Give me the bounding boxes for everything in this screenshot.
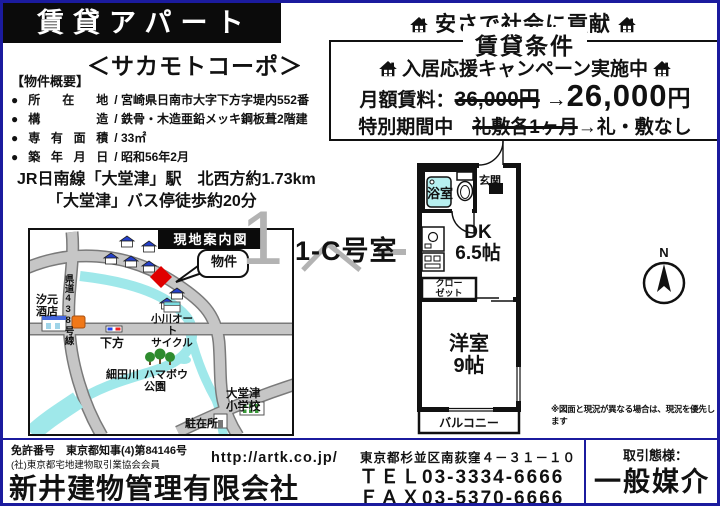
rent-line: 月額賃料：36,000円 →26,000円 <box>331 78 719 114</box>
rent-arrow: → <box>546 88 567 111</box>
separator: / <box>114 93 117 107</box>
company-name: 新井建物管理有限会社 <box>9 467 299 506</box>
footer-divider <box>3 438 720 440</box>
overview-value: 昭和56年2月 <box>121 150 189 164</box>
flyer-page: 賃貸アパート 安さで社会に貢献 賃貸条件 入居応援キャンペーン実施中 月額賃料：… <box>0 0 720 506</box>
property-name: ＜サカモトコーポ＞ <box>87 47 303 81</box>
overview-row: ●構造/ 鉄骨・木造亜鉛メッキ鋼板葺2階建 <box>11 110 309 129</box>
room-number: 1-C号室 <box>295 229 398 268</box>
website-url: http://artk.co.jp/ <box>211 450 338 466</box>
map-label-school: 大堂津 小学校 <box>226 388 261 414</box>
overview-value: 33㎡ <box>121 131 146 145</box>
bath-label: 浴室 <box>427 183 453 202</box>
special-arrow: → <box>578 117 597 138</box>
house-icon <box>379 61 397 77</box>
map-label-river: 細田川 <box>106 369 139 381</box>
balcony-label: バルコニー <box>425 414 513 431</box>
special-new: 礼・敷なし <box>597 117 692 138</box>
rent-old-price: 36,000円 <box>455 88 540 111</box>
map-label-route438: 県道438号線 <box>62 274 73 350</box>
special-line: 特別期間中 礼敷各1ヶ月→礼・敷なし <box>331 112 719 139</box>
rent-new-unit: 円 <box>667 85 690 111</box>
compass-icon <box>641 260 687 306</box>
campaign-line: 入居応援キャンペーン実施中 <box>331 54 719 81</box>
rent-label: 月額賃料： <box>360 90 455 111</box>
page-title: 賃貸アパート <box>3 3 281 43</box>
compass: N <box>641 245 687 311</box>
overview-heading: 【物件概要】 <box>11 71 89 90</box>
map-label-liquor-shop: 汐元 酒店 <box>36 294 58 319</box>
overview-list: ●所在地/ 宮崎県日南市大字下方字堤内552番 ●構造/ 鉄骨・木造亜鉛メッキ鋼… <box>11 91 309 167</box>
bullet-icon: ● <box>11 93 18 107</box>
overview-value: 鉄骨・木造亜鉛メッキ鋼板葺2階建 <box>121 112 308 126</box>
callout-label: 物件 <box>202 255 246 270</box>
overview-label: 所在地 <box>28 91 108 110</box>
bullet-icon: ● <box>11 150 18 164</box>
overview-row: ●専有面積/ 33㎡ <box>11 129 309 148</box>
map-label-park: ハマボウ 公園 <box>144 369 188 394</box>
river-wide <box>32 400 78 434</box>
special-old: 礼敷各1ヶ月 <box>472 117 578 138</box>
campaign-text: 入居応援キャンペーン実施中 <box>402 59 648 80</box>
traffic-signal-icon <box>106 326 122 332</box>
bedroom-label: 洋室 9帖 <box>439 333 499 377</box>
overview-label: 専有面積 <box>28 129 108 148</box>
special-prefix: 特別期間中 <box>358 117 472 138</box>
overview-value: 宮崎県日南市大字下方字堤内552番 <box>121 93 309 107</box>
cycle-shop-icon <box>164 302 180 312</box>
license-number: 免許番号 東京都知事(4)第84146号 <box>11 442 187 458</box>
bullet-icon: ● <box>11 131 18 145</box>
overview-label: 構造 <box>28 110 108 129</box>
dk-label: DK 6.5帖 <box>447 223 509 265</box>
rent-new-price: 26,000 <box>567 78 668 113</box>
conditions-box: 賃貸条件 入居応援キャンペーン実施中 月額賃料：36,000円 →26,000円… <box>329 40 720 141</box>
house-icon <box>653 61 671 77</box>
map-label-police: 駐在所 <box>185 418 218 430</box>
deal-type-value: 一般媒介 <box>594 460 710 499</box>
access-line-1: JR日南線「大堂津」駅 北西方約1.73km <box>17 165 316 189</box>
closet-label: クロー ゼット <box>423 278 475 299</box>
compass-n-label: N <box>641 245 687 260</box>
separator: / <box>114 150 117 164</box>
footer-vertical-divider <box>584 440 586 506</box>
map-label-cycle-shop: 小川オート サイクル <box>146 314 198 349</box>
separator: / <box>114 112 117 126</box>
separator: / <box>114 131 117 145</box>
overview-row: ●所在地/ 宮崎県日南市大字下方字堤内552番 <box>11 91 309 110</box>
map-label-shimokata: 下方 <box>100 337 124 350</box>
floor-plan: 浴室 玄関 DK 6.5帖 クロー ゼット 洋室 9帖 バルコニー <box>413 141 533 437</box>
watermark-numeral: 1 <box>241 201 283 277</box>
bullet-icon: ● <box>11 112 18 126</box>
access-line-2: 「大堂津」バス停徒歩約20分 <box>47 187 257 211</box>
fax-number: ＦＡＸ03-5370-6666 <box>359 483 564 506</box>
entrance-label: 玄関 <box>479 172 501 188</box>
disclaimer-note: ※図面と現況が異なる場合は、現況を優先します <box>551 403 720 427</box>
